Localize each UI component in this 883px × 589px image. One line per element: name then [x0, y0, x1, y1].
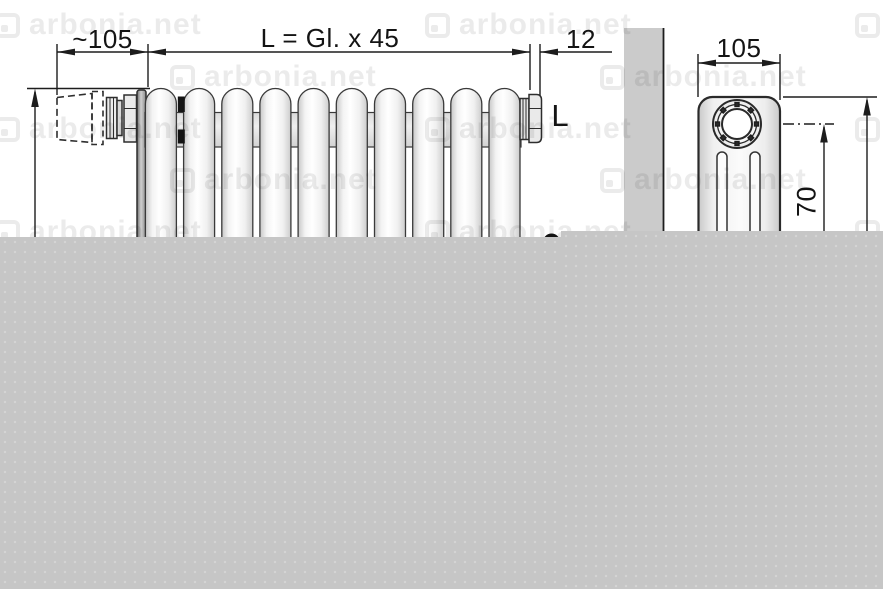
flange-bolt — [755, 122, 759, 126]
radiator-tube — [413, 89, 444, 246]
gray-cover-block-left — [0, 237, 561, 589]
thermostat-valve-head — [57, 92, 103, 145]
nipple-weld-mark-bottom — [178, 130, 185, 144]
flange-bolt — [735, 103, 739, 107]
length-letter-label: L — [545, 100, 575, 131]
radiator-tube — [336, 89, 367, 246]
valve-connection — [107, 90, 147, 245]
flange-bolt — [735, 142, 739, 146]
valve-head-body — [57, 94, 92, 143]
front-view — [27, 44, 612, 251]
dim-label-end-plug: 12 — [546, 26, 616, 52]
radiator-drawing-page: ~105 L = Gl. x 45 12 L 105 70 arbonia.ne… — [0, 0, 883, 589]
nipple-weld-mark-top — [178, 97, 185, 113]
valve-union-nut — [124, 95, 137, 142]
radiator-tube — [489, 89, 520, 246]
dim-label-pipe-center-height: 70 — [794, 162, 821, 242]
connection-flange — [713, 100, 761, 148]
valve-ribbed-ring — [107, 98, 118, 139]
valve-spacer-ring — [117, 101, 122, 136]
arrow-up — [820, 124, 828, 143]
arrow-up — [863, 97, 871, 116]
radiator-tube — [260, 89, 291, 246]
dim-label-depth: 105 — [694, 35, 784, 61]
flange-inner-port — [722, 109, 752, 139]
dim-label-length-formula: L = Gl. x 45 — [240, 25, 420, 51]
dim-label-valve-width: ~105 — [45, 26, 160, 52]
height-arrow-up — [31, 89, 39, 108]
radiator-tube — [451, 89, 482, 246]
flange-bolt — [716, 122, 720, 126]
wall-section — [624, 28, 663, 231]
gray-cover-block-right — [561, 231, 883, 589]
valve-head-ring — [92, 92, 103, 145]
radiator-tube — [222, 89, 253, 246]
plug-nut — [529, 95, 542, 143]
arrow-right — [512, 49, 530, 56]
radiator-tube — [375, 89, 406, 246]
end-plug — [520, 95, 542, 143]
radiator-tube — [298, 89, 329, 246]
plug-collar — [520, 99, 529, 140]
radiator-tube — [145, 89, 176, 246]
radiator-tube — [184, 89, 215, 246]
